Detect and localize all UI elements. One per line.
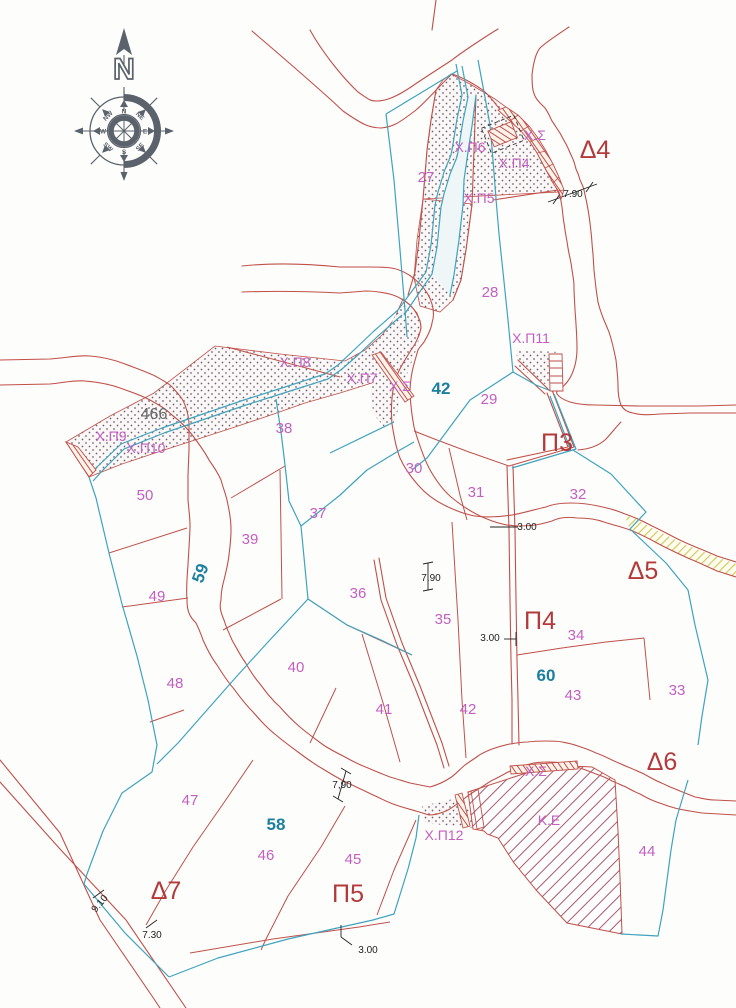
svg-text:3.00: 3.00 [517, 522, 537, 533]
svg-text:Χ.Σ: Χ.Σ [524, 127, 546, 143]
svg-text:38: 38 [276, 420, 293, 437]
svg-text:42: 42 [460, 701, 477, 718]
svg-text:58: 58 [267, 815, 286, 834]
svg-text:45: 45 [345, 851, 362, 868]
svg-text:35: 35 [435, 611, 452, 628]
svg-text:31: 31 [468, 484, 485, 501]
svg-text:42: 42 [432, 379, 451, 398]
svg-text:Χ.Σ: Χ.Σ [525, 763, 547, 779]
svg-text:Π5: Π5 [332, 880, 364, 908]
svg-text:60: 60 [537, 666, 556, 685]
svg-text:28: 28 [482, 284, 499, 301]
svg-text:E: E [143, 128, 148, 135]
svg-text:Δ5: Δ5 [628, 557, 659, 585]
svg-text:Χ.Π6: Χ.Π6 [454, 139, 485, 155]
svg-text:N: N [113, 53, 135, 86]
svg-text:Χ.Π9: Χ.Π9 [95, 428, 126, 444]
svg-text:50: 50 [137, 487, 154, 504]
svg-text:Χ.Π11: Χ.Π11 [512, 330, 550, 346]
svg-text:Χ.Π10: Χ.Π10 [127, 440, 166, 456]
svg-text:7.90: 7.90 [421, 573, 441, 584]
svg-text:7.30: 7.30 [142, 930, 162, 941]
svg-text:Δ6: Δ6 [647, 748, 678, 776]
svg-text:27: 27 [418, 169, 435, 186]
svg-text:43: 43 [565, 687, 582, 704]
svg-text:41: 41 [376, 701, 393, 718]
svg-text:34: 34 [568, 627, 585, 644]
svg-text:36: 36 [350, 585, 367, 602]
svg-text:Κ.Ε: Κ.Ε [538, 812, 561, 828]
svg-text:466: 466 [141, 406, 168, 423]
svg-text:47: 47 [182, 792, 199, 809]
svg-text:46: 46 [258, 847, 275, 864]
svg-text:Χ.Σ: Χ.Σ [389, 378, 411, 394]
svg-text:29: 29 [481, 391, 498, 408]
svg-text:Π3: Π3 [541, 429, 573, 457]
svg-text:S: S [122, 149, 127, 156]
svg-text:W: W [100, 128, 107, 135]
svg-text:49: 49 [149, 588, 166, 605]
svg-text:44: 44 [639, 843, 656, 860]
svg-text:7.90: 7.90 [563, 189, 583, 200]
svg-text:48: 48 [167, 675, 184, 692]
svg-text:Π4: Π4 [524, 607, 556, 635]
svg-text:30: 30 [406, 460, 423, 477]
svg-text:Χ.Π5: Χ.Π5 [463, 190, 494, 206]
svg-text:33: 33 [669, 682, 686, 699]
svg-text:40: 40 [288, 659, 305, 676]
svg-text:39: 39 [242, 531, 259, 548]
svg-text:7,90: 7,90 [332, 780, 352, 791]
svg-text:Χ.Π4: Χ.Π4 [498, 155, 529, 171]
svg-text:37: 37 [310, 505, 327, 522]
svg-text:N: N [122, 109, 127, 116]
svg-text:Δ4: Δ4 [580, 136, 611, 164]
svg-text:3.00: 3.00 [358, 945, 378, 956]
svg-text:Χ.Π12: Χ.Π12 [425, 827, 464, 843]
svg-text:Δ7: Δ7 [151, 877, 182, 905]
svg-text:3.00: 3.00 [480, 633, 500, 644]
svg-text:Χ.Π8: Χ.Π8 [279, 354, 310, 370]
svg-text:32: 32 [570, 486, 587, 503]
svg-text:Χ.Π7: Χ.Π7 [346, 370, 377, 386]
